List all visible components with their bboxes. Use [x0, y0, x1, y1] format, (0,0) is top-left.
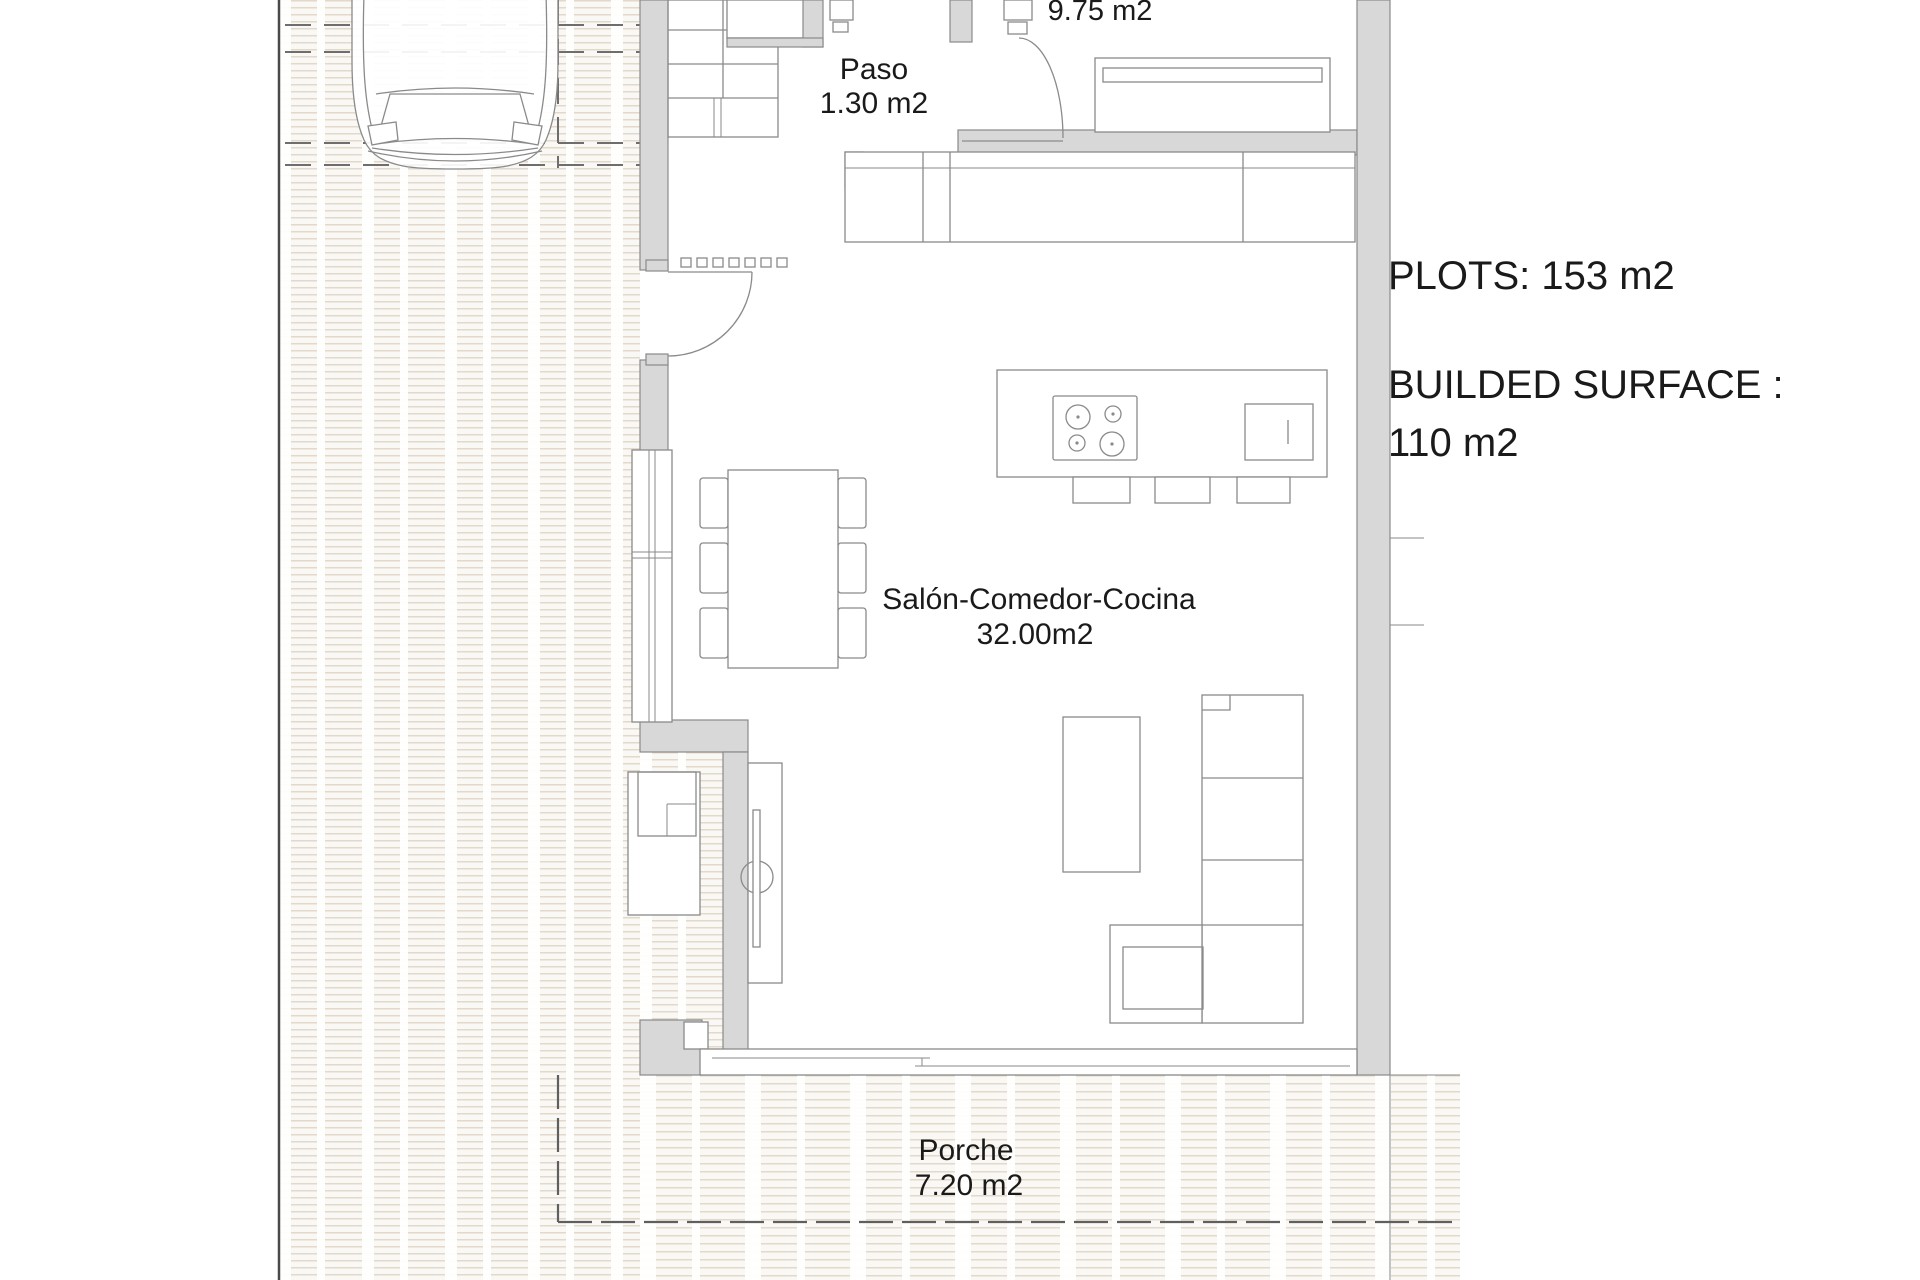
window-left [632, 450, 672, 722]
built-surface-label: BUILDED SURFACE : [1388, 364, 1784, 407]
door-jamb-bottom [646, 354, 668, 365]
dining-set [700, 470, 866, 668]
floor-plan-drawing [0, 0, 1920, 1280]
room-label-paso-area: 1.30 m2 [820, 88, 928, 120]
coffee-table [1063, 717, 1140, 872]
chair [838, 478, 866, 528]
wall-left-lower [723, 752, 748, 1052]
wall-kitchen-top [958, 130, 1357, 155]
door-jamb-top [646, 260, 668, 271]
wall-left-upper [640, 0, 668, 270]
wall-left-mid [640, 360, 668, 452]
ac-unit [628, 772, 700, 915]
stool [1073, 477, 1130, 503]
hall-door-jamb [830, 0, 853, 32]
entrance-door [668, 272, 752, 356]
room-label-salon-name: Salón-Comedor-Cocina [882, 584, 1195, 616]
overhead-dotted-line [681, 258, 787, 267]
chair [700, 543, 728, 593]
stool [1237, 477, 1290, 503]
wall-right [1357, 0, 1390, 1075]
top-room-fixture [727, 0, 823, 47]
dining-table [728, 470, 838, 668]
chair [700, 608, 728, 658]
built-surface-value: 110 m2 [1388, 422, 1518, 465]
sliding-door [684, 1022, 1357, 1075]
chair [838, 608, 866, 658]
car [352, 0, 558, 169]
sofa-chaise [1110, 925, 1202, 1023]
room-label-9-75: 9.75 m2 [1048, 0, 1153, 27]
chair [838, 543, 866, 593]
plots-label: PLOTS: 153 m2 [1388, 255, 1675, 298]
room-label-salon-area: 32.00m2 [977, 619, 1094, 651]
chair [700, 478, 728, 528]
wall-jog [640, 720, 748, 752]
tv-screen [753, 810, 760, 947]
room-label-paso-name: Paso [840, 54, 908, 86]
wall-break-ticks [1390, 538, 1424, 625]
wardrobe [1095, 58, 1330, 132]
kitchen-island [997, 370, 1327, 503]
car-windshield [376, 94, 534, 144]
kitchen-counter [845, 152, 1355, 242]
room-label-porche-area: 7.20 m2 [915, 1170, 1023, 1202]
floor-plan-page: 9.75 m2 Paso 1.30 m2 Salón-Comedor-Cocin… [0, 0, 1920, 1280]
room-label-porche-name: Porche [918, 1135, 1013, 1167]
stool [1155, 477, 1210, 503]
wall-door-pier [950, 0, 972, 42]
